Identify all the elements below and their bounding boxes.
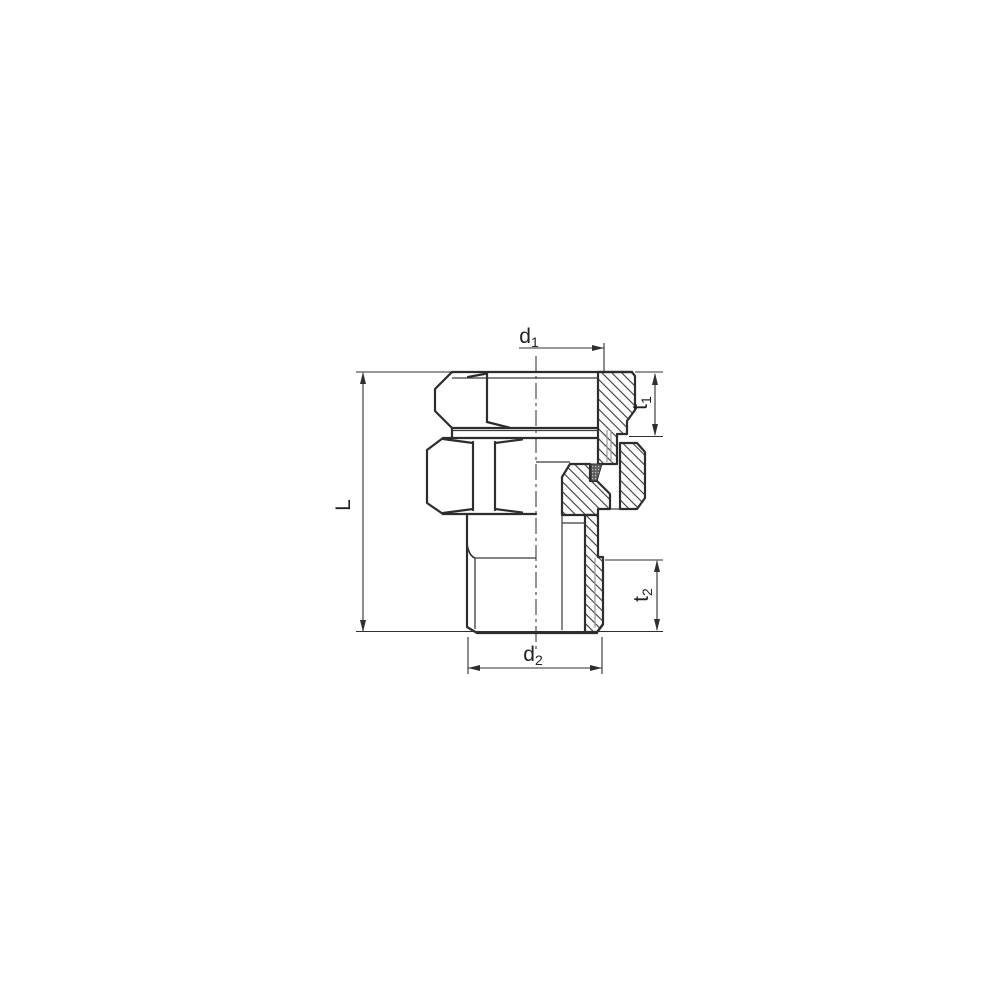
section-body-hex-right <box>620 443 645 509</box>
dim-label-L: L <box>332 499 355 511</box>
page: d1 t1 t2 d2 L <box>0 0 1000 1000</box>
section-stem-wall <box>585 515 603 632</box>
dim-label-d1: d1 <box>519 325 539 350</box>
dim-label-t2: t2 <box>630 588 655 602</box>
fitting-technical-drawing: d1 t1 t2 d2 L <box>0 0 1000 1000</box>
dim-label-d2: d2 <box>523 643 543 668</box>
section-hatching <box>562 372 645 632</box>
section-body-seat <box>562 464 610 515</box>
seal-ring <box>591 464 602 481</box>
